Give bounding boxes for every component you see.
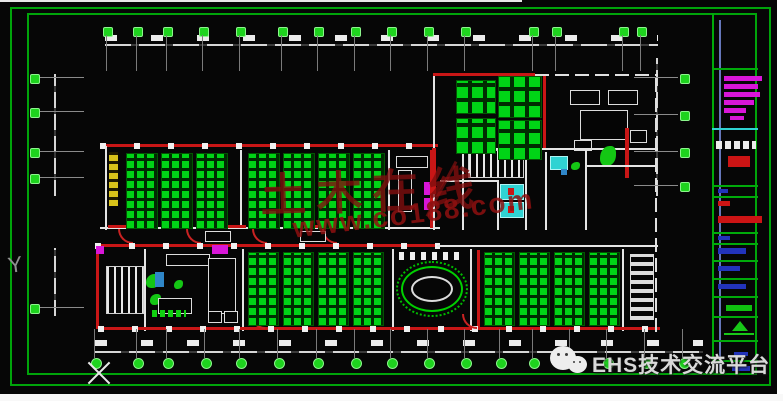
dim-leader-line [634,77,678,78]
grid-extension-line [136,35,137,71]
grid-axis-marker [680,74,690,84]
grid-extension-line [136,329,137,358]
grid-axis-bubble [163,358,174,369]
top-edge-line [0,0,522,2]
grid-extension-line [166,35,167,71]
dim-leader-line [40,111,84,112]
grid-extension-line [499,329,500,358]
fixture-magenta [96,246,104,254]
wall-partition [240,150,242,228]
wall-red-segment [543,76,546,148]
grid-extension-line [464,329,465,358]
titleblock-text-bar [726,305,752,311]
conference-table-inner [411,276,453,302]
grid-extension-line [106,35,107,71]
grid-extension-line [354,35,355,71]
wall-partition [242,249,244,331]
grid-axis-marker [387,27,397,37]
fixture-blue [155,272,164,287]
page-margin-bottom [0,394,783,401]
grid-axis-marker [133,27,143,37]
titleblock-text-bar [718,216,762,223]
grid-extension-line [390,35,391,71]
workstation-cluster [318,252,349,326]
grid-extension-line [94,329,95,358]
wall-partition [545,152,547,230]
dim-leader-line [40,307,84,308]
wechat-icon-small-bubble [568,356,587,373]
stairs [106,266,144,314]
titleblock-text-bar [724,84,758,89]
titleblock-left-border [712,13,714,373]
workstation-cluster [554,252,585,326]
grid-axis-marker [461,27,471,37]
grid-axis-marker [529,27,539,37]
door-frame [208,311,222,323]
titleblock-text-bar [716,141,756,149]
wall-mid-east [437,245,658,247]
titleblock-divider [712,316,758,318]
grid-extension-line [464,35,465,71]
titleblock-text-bar [724,76,762,81]
cad-viewport[interactable]: 土木在线 www.co188.com EHS技术交流平台 Y [0,0,777,394]
grid-extension-line [166,329,167,358]
titleblock-text-bar [724,108,746,113]
meeting-table-group [456,80,496,114]
titleblock-divider [712,278,758,280]
titleblock-divider [712,196,758,198]
furniture-shelving [630,254,654,320]
fixture-blue [561,169,567,175]
grid-extension-line [239,35,240,71]
grid-axis-marker [619,27,629,37]
titleblock-arrow-base [724,333,754,335]
dim-line-top [105,44,658,46]
titleblock-text-bar [718,284,746,289]
grid-extension-line [622,35,623,71]
titleblock-text-bar [718,201,730,206]
stair-yellow-strip [109,152,118,206]
wall-partition [622,249,624,331]
grid-axis-bubble [274,358,285,369]
titleblock-text-bar [718,248,746,254]
page-margin-right [777,0,783,401]
executive-desk [580,110,628,140]
grid-axis-marker [637,27,647,37]
titleblock-text-bar [730,116,744,120]
dim-leader-line [634,151,678,152]
titleblock-text-bar [728,156,750,167]
dim-leader-line [634,114,678,115]
titleblock-text-bar [718,236,730,240]
dim-line-left-lower [54,248,56,316]
meeting-table-group [498,120,542,160]
grid-axis-marker [199,27,209,37]
grid-axis-marker [30,304,40,314]
cad-screenshot: 土木在线 www.co188.com EHS技术交流平台 Y [0,0,783,401]
workstation-cluster [589,252,620,326]
grid-axis-marker [30,74,40,84]
grid-axis-marker [552,27,562,37]
titleblock-text-bar [718,189,728,193]
grid-axis-bubble [313,358,324,369]
grid-axis-marker [680,148,690,158]
grid-extension-line [202,35,203,71]
grid-axis-marker [351,27,361,37]
grid-axis-marker [163,27,173,37]
door-frame [224,311,238,323]
titleblock-divider [712,296,758,298]
titleblock-divider [712,68,758,70]
wall-partition [392,249,394,331]
grid-axis-bubble [351,358,362,369]
meeting-table-group [456,118,496,154]
conference-table [401,266,463,312]
grid-axis-marker [30,148,40,158]
grid-extension-line [532,35,533,71]
dim-text-row-top [105,35,658,41]
grid-extension-line [277,329,278,358]
wechat-icon-eye [573,361,575,363]
wall-partition [585,150,587,230]
dim-leader-line [634,185,678,186]
dim-leader-line [40,177,84,178]
grid-axis-bubble [496,358,507,369]
grid-axis-bubble [387,358,398,369]
grid-axis-marker [314,27,324,37]
titleblock-divider [712,243,758,245]
wall-partition [535,148,658,150]
grid-axis-marker [424,27,434,37]
wall-red-west [96,249,99,329]
grid-extension-line [390,329,391,358]
workstation-cluster [248,252,279,326]
workstation-cluster [161,153,193,229]
workstation-cluster [353,252,384,326]
titleblock-text-bar [718,266,740,271]
door-frame [205,231,231,242]
grid-axis-bubble [236,358,247,369]
grid-axis-marker [680,182,690,192]
wechat-icon-eye [579,361,581,363]
dim-leader-line [40,151,84,152]
column-blobs-mid [95,243,440,249]
grid-axis-marker [30,174,40,184]
titleblock-divider [712,185,758,187]
workstation-cluster [484,252,515,326]
grid-axis-marker [278,27,288,37]
grid-axis-bubble [529,358,540,369]
grid-extension-line [640,35,641,71]
room-label-green [152,310,186,317]
grid-extension-line [204,329,205,358]
titleblock-divider [712,260,758,262]
meeting-table-group [498,76,542,118]
workstation-cluster [519,252,550,326]
grid-axis-marker [30,108,40,118]
grid-axis-bubble [424,358,435,369]
titleblock-divider [712,128,758,130]
furniture-outline [166,254,210,266]
grid-extension-line [354,329,355,358]
grid-extension-line [555,35,556,71]
furniture-outline [208,258,236,314]
chair-row [399,252,461,260]
ucs-origin-icon [84,358,114,388]
wechat-icon-eye [565,353,568,356]
grid-extension-line [239,329,240,358]
grid-axis-marker [236,27,246,37]
furniture-outline [570,90,600,105]
grid-axis-bubble [461,358,472,369]
grid-extension-line [427,329,428,358]
furniture-outline [630,130,647,143]
grid-axis-bubble [133,358,144,369]
wall-red-segment [625,128,629,178]
wall-partition [144,249,146,331]
grid-extension-line [281,35,282,71]
wall-west-upper [105,146,107,230]
wall-partition [585,165,655,167]
titleblock-divider [712,232,758,234]
ucs-y-axis-label: Y [6,251,24,279]
wall-red-segment [477,250,480,328]
grid-extension-line [316,329,317,358]
grid-axis-marker [103,27,113,37]
wechat-icon-eye [557,353,560,356]
titleblock-text-bar [724,100,754,105]
grid-axis-bubble [201,358,212,369]
dim-leader-line [40,77,84,78]
column-blobs-north [100,143,438,149]
workstation-cluster [196,153,228,229]
workstation-cluster [126,153,158,229]
grid-extension-line [317,35,318,71]
fixture-cyan [550,156,568,170]
titleblock-text-bar [724,92,760,97]
column-blobs-south [98,326,660,332]
titleblock-north-arrow [732,321,748,331]
footer-watermark: EHS技术交流平台 [548,342,778,386]
fixture-magenta [212,245,228,254]
footer-watermark-text: EHS技术交流平台 [592,349,770,379]
wall-window-north [535,74,658,76]
grid-extension-line [532,329,533,358]
grid-extension-line [427,35,428,71]
grid-axis-marker [680,111,690,121]
furniture-outline [608,90,638,105]
workstation-cluster [283,252,314,326]
